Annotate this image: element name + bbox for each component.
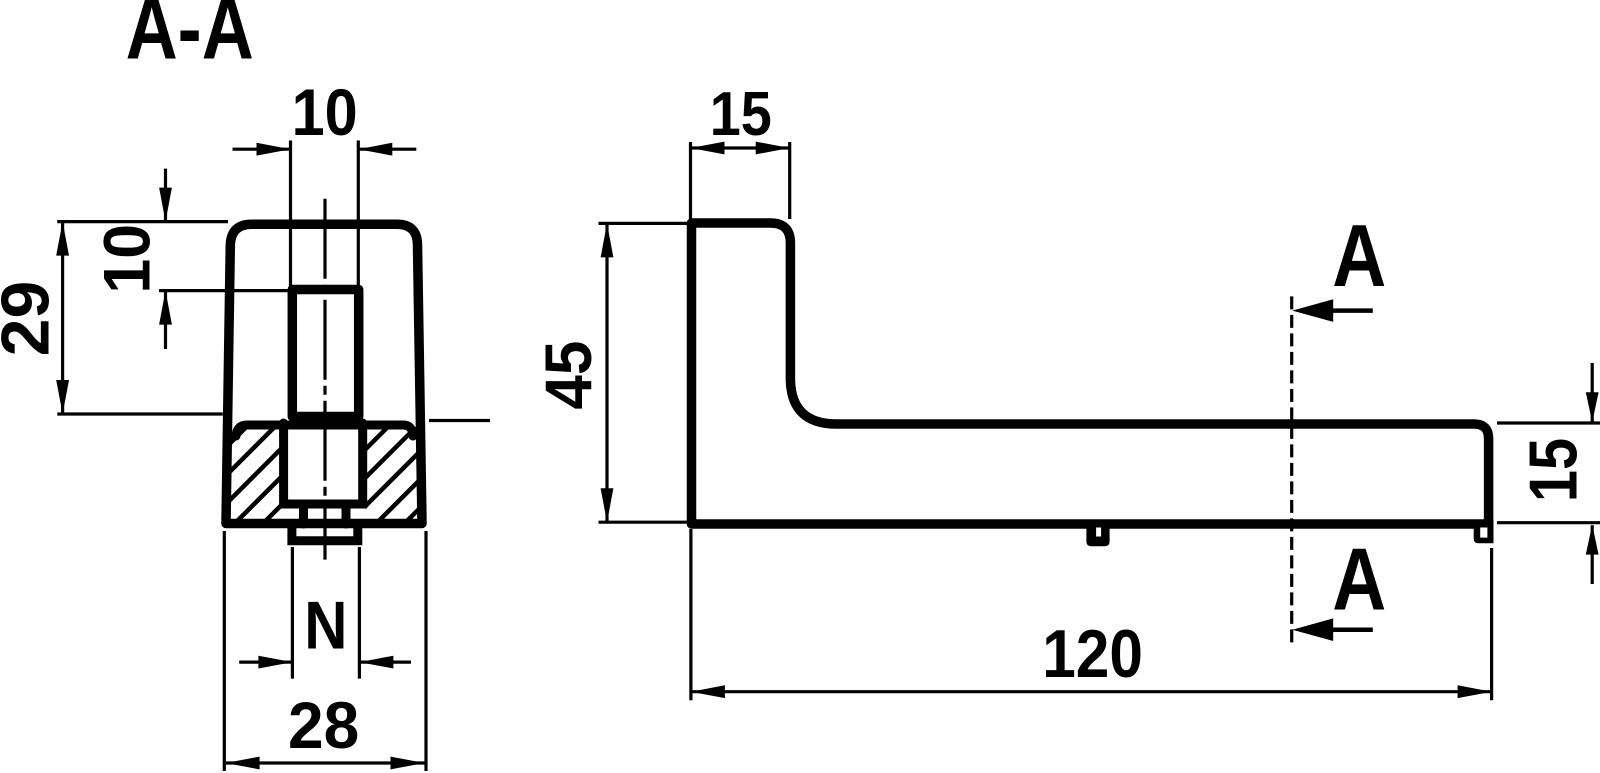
svg-text:120: 120 bbox=[1042, 616, 1143, 692]
svg-text:45: 45 bbox=[531, 341, 605, 410]
svg-text:A-A: A-A bbox=[126, 0, 254, 78]
svg-text:10: 10 bbox=[292, 76, 358, 150]
svg-text:29: 29 bbox=[0, 281, 64, 357]
svg-text:15: 15 bbox=[710, 80, 772, 148]
svg-text:A: A bbox=[1332, 531, 1386, 629]
svg-text:A: A bbox=[1332, 207, 1386, 305]
svg-text:N: N bbox=[304, 587, 347, 663]
svg-text:10: 10 bbox=[90, 224, 164, 294]
svg-text:28: 28 bbox=[288, 688, 359, 762]
svg-text:15: 15 bbox=[1516, 438, 1591, 502]
